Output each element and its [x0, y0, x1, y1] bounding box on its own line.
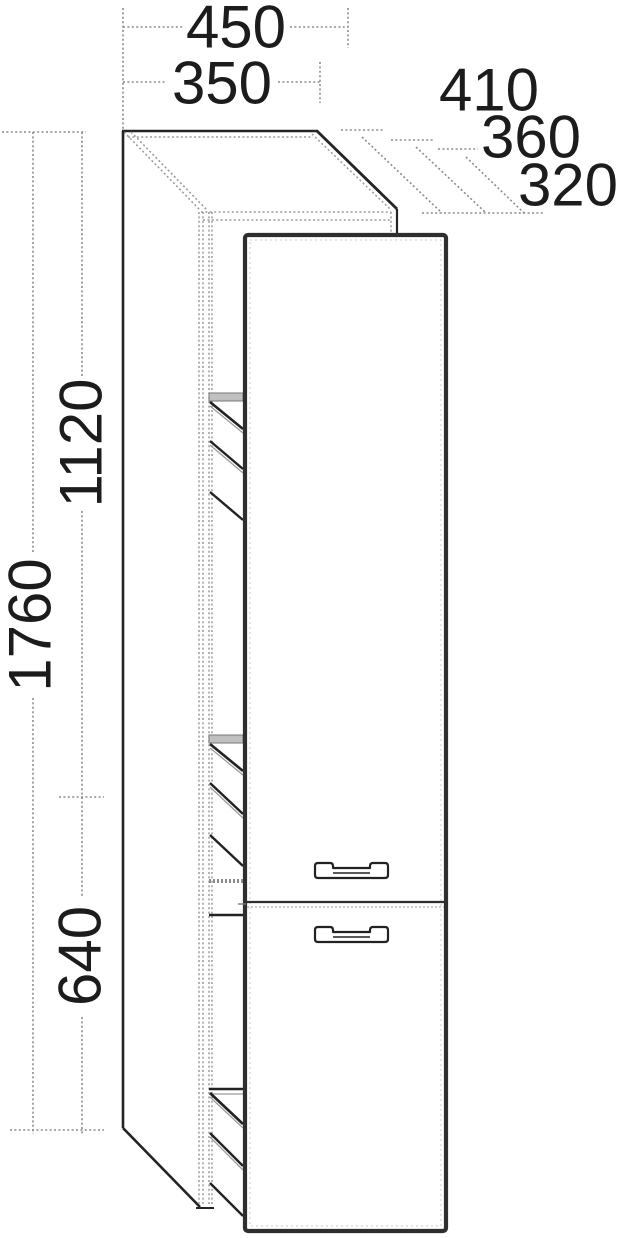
basket2-hatch-2s	[210, 787, 243, 818]
dim-depth-diagonal-1	[362, 137, 442, 213]
basket1-hatch-1s	[210, 406, 243, 433]
carcass-top-right-edge	[317, 131, 397, 209]
carcass-top-right-inner	[312, 134, 391, 210]
label-height-upper: 1120	[48, 378, 115, 507]
technical-drawing-canvas: 450 350 410 360 320 1760 1120 640	[0, 0, 628, 1238]
carcass-top-left-edge	[124, 132, 200, 210]
basket1-hatch-3	[210, 492, 243, 520]
carcass-top-left-edge-2	[131, 132, 207, 210]
carcass-bottom-left-edge	[123, 1128, 200, 1207]
basket1-hatch-2s	[210, 445, 243, 473]
label-depth-c: 320	[518, 152, 618, 219]
basket2-hatch-3	[210, 835, 243, 866]
basket1-hatch-2	[210, 441, 243, 469]
basket3-hatch-1s	[210, 1097, 243, 1128]
basket2-hatch-1s	[210, 748, 243, 775]
basket1-hatch-1	[210, 402, 243, 429]
basket3-hatch-2s	[210, 1137, 243, 1170]
basket2-hatch-1	[210, 744, 243, 771]
label-width-inner: 350	[172, 50, 272, 117]
basket3-hatch-1	[210, 1093, 243, 1124]
cabinet-dimension-diagram: 450 350 410 360 320 1760 1120 640	[0, 0, 628, 1238]
label-height-lower: 640	[47, 906, 114, 1006]
pullout-baskets	[209, 393, 243, 1216]
door-front	[238, 235, 446, 1231]
basket3-hatch-2	[210, 1133, 243, 1166]
basket1-rail	[209, 393, 243, 401]
label-height-total: 1760	[0, 558, 64, 691]
basket2-rail	[209, 735, 243, 743]
basket3-hatch-3	[210, 1183, 243, 1216]
basket2-hatch-2	[210, 783, 243, 814]
door-panel	[245, 235, 446, 1231]
dim-depth-diagonal-2	[416, 147, 486, 213]
